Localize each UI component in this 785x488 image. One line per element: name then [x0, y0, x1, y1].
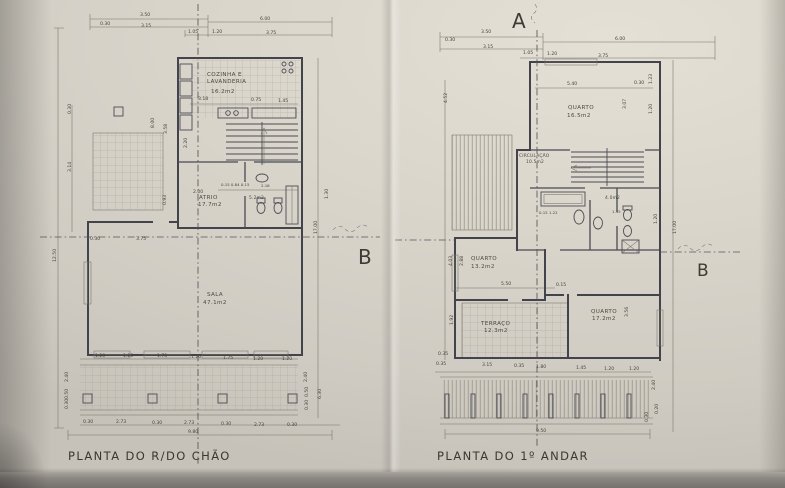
dim-label: 6.00 — [260, 16, 270, 22]
stairs — [226, 122, 298, 165]
room-label-quarto1: QUARTO — [568, 105, 594, 111]
dim-label: 3.15 — [483, 44, 493, 50]
dim-label: 2.20 — [183, 138, 189, 148]
dim-label: 3.75 — [136, 236, 146, 242]
dim-label: 1.20 — [629, 366, 639, 372]
balcony-railing — [440, 377, 653, 424]
dim-label: 1.20 — [191, 354, 201, 360]
dimension-labels: 3.50 0.30 3.15 6.00 1.05 1.20 3.75 5.40 … — [436, 29, 678, 434]
dim-label: 0.75 — [251, 97, 261, 103]
terrace-tiles — [80, 365, 298, 415]
dim-label: 3.15 — [141, 23, 151, 29]
dim-label: 1.20 — [547, 51, 557, 57]
dim-label: 0.30 — [83, 419, 93, 425]
dim-label: 3.75 — [598, 53, 608, 59]
section-marker-a: A — [512, 9, 526, 33]
dim-label-total-width: 9.50 — [536, 428, 546, 434]
dim-label: 12.50 — [52, 249, 58, 262]
dim-label: 4.03 — [448, 256, 454, 266]
dim-label: 0.93 — [162, 195, 168, 205]
dim-label: 0.30 — [152, 420, 162, 426]
room-area-sala: 47.1m2 — [203, 300, 227, 306]
table-surface — [0, 472, 785, 488]
room-area-wc: 4.0m2 — [605, 195, 620, 201]
dim-label: 0.35 — [436, 361, 446, 367]
dim-label: 0.30 — [445, 37, 455, 43]
dim-label: 3.75 — [266, 30, 276, 36]
dim-label: 2.88 — [459, 256, 465, 266]
windows — [84, 262, 288, 358]
dim-label: 3.50 — [140, 12, 150, 18]
dim-label: 4.52 — [443, 93, 449, 103]
dim-label: 0.30 — [221, 421, 231, 427]
roof-hatch — [452, 135, 512, 230]
dim-label: 2.00 — [193, 189, 203, 195]
room-label-sala: SALA — [207, 292, 223, 298]
dim-label: 0.30 — [287, 422, 297, 428]
dim-label: 0.20 — [654, 404, 660, 414]
plan-title-first-floor: PLANTA DO 1º ANDAR — [437, 449, 589, 463]
dim-label: 1.20 — [604, 366, 614, 372]
room-label-atrio: ATRIO — [199, 195, 218, 201]
dim-label: 2.40 — [64, 372, 70, 382]
dim-label: 3.58 — [163, 124, 169, 134]
dim-label: 3.56 — [624, 307, 630, 317]
room-area-atrio: 17.7m2 — [198, 202, 222, 208]
dim-label: 1.05 — [523, 50, 533, 56]
dim-label: 0.50 — [64, 389, 70, 399]
photographed-floor-plan-sheet: { "photo": { "paper_color": "#dad6cc", "… — [0, 0, 785, 488]
room-area-circulacao: 10.5m2 — [526, 159, 544, 165]
room-area-terraco: 12.3m2 — [484, 328, 508, 334]
room-area-cozinha: 16.2m2 — [211, 89, 235, 95]
dim-label: 0.30 — [634, 80, 644, 86]
room-label-terraco: TERRAÇO — [480, 321, 511, 327]
dim-label: 3.07 — [622, 99, 628, 109]
dim-label: 1.20 — [282, 356, 292, 362]
section-marker-b: B — [697, 261, 709, 281]
dim-label: 0.30 — [100, 21, 110, 27]
dim-label: 0.30 — [64, 399, 70, 409]
dim-label: 1.20 — [212, 29, 222, 35]
dim-label: 2.73 — [116, 419, 126, 425]
dim-label: 1.20 — [648, 104, 654, 114]
ground-floor-plan: COZINHA E LAVANDERIA 16.2m2 ATRIO 17.7m2… — [40, 0, 410, 480]
dim-label: 1.20 — [123, 353, 133, 359]
laundry-closets — [180, 64, 192, 130]
dim-label: 6.00 — [615, 36, 625, 42]
dim-label: 1.30 — [324, 189, 330, 199]
dim-label: 3.15 — [482, 362, 492, 368]
dim-label: 0.35 — [438, 351, 448, 357]
dim-label-total-width: 9.80 — [188, 429, 198, 435]
section-marker-b: B — [358, 245, 372, 269]
dim-label: 0.30 — [644, 412, 650, 422]
room-label-quarto3: QUARTO — [591, 309, 617, 315]
dim-label: 1.92 — [449, 315, 455, 325]
dim-label: 5.40 — [567, 81, 577, 87]
dim-label: 0.35 — [514, 363, 524, 369]
plan-title-ground-floor: PLANTA DO R/DO CHÃO — [68, 448, 231, 463]
dim-label: 3.50 — [481, 29, 491, 35]
dim-label: 1.45 — [576, 365, 586, 371]
dim-label: 1.20 — [653, 214, 659, 224]
stairs — [571, 148, 644, 186]
dim-label: 0.30 — [67, 104, 73, 114]
dim-label: 0.50 — [304, 387, 310, 397]
dim-label: 8.00 — [150, 118, 156, 128]
dim-label: 0.15 — [556, 282, 566, 288]
room-label-cozinha-line2: LAVANDERIA — [207, 79, 246, 85]
dim-label: 1.05 — [188, 29, 198, 35]
room-area-quarto1: 16.5m2 — [567, 113, 591, 119]
dimension-lines — [435, 32, 715, 439]
room-label-circulacao: CIRCULAÇÃO — [519, 152, 550, 159]
dim-label: 17.00 — [672, 221, 678, 234]
dim-label: 0.15 0.84 0.15 — [221, 182, 250, 187]
first-floor-plan: QUARTO 16.5m2 CIRCULAÇÃO 10.5m2 4.0m2 QU… — [395, 0, 743, 480]
dim-label: 1.75 — [157, 353, 167, 359]
dim-label: 1.45 — [278, 98, 288, 104]
room-area-quarto3: 17.2m2 — [592, 316, 616, 322]
dim-label: 1.35 — [612, 209, 621, 214]
dim-label: 3.18 — [198, 96, 208, 102]
terrace-tiles — [462, 303, 568, 358]
dim-label: 1.20 — [253, 356, 263, 362]
dim-label: 1.80 — [536, 364, 546, 370]
room-label-quarto2: QUARTO — [471, 256, 497, 262]
dim-label: 17.00 — [313, 221, 319, 234]
dim-label: 1.75 — [223, 355, 233, 361]
dim-label: 2.40 — [651, 380, 657, 390]
room-label-cozinha-line1: COZINHA E — [207, 72, 242, 78]
dim-label: 3.14 — [67, 162, 73, 172]
room-area-wc: 5.2m2 — [249, 195, 264, 201]
dim-label: 0.30 — [304, 400, 310, 410]
dim-label: 2.40 — [303, 372, 309, 382]
dim-label: 0.30 — [90, 236, 100, 242]
room-area-quarto2: 13.2m2 — [471, 264, 495, 270]
dim-label: 2.73 — [254, 422, 264, 428]
dim-label: 0.15 1.22 — [539, 210, 558, 215]
dim-label: 5.50 — [501, 281, 511, 287]
dim-label: 2.16 — [261, 183, 270, 188]
dim-label: 2.73 — [184, 420, 194, 426]
dim-label: 1.20 — [95, 353, 105, 359]
dim-label: 1.23 — [648, 74, 654, 84]
dim-label: 6.30 — [317, 389, 323, 399]
